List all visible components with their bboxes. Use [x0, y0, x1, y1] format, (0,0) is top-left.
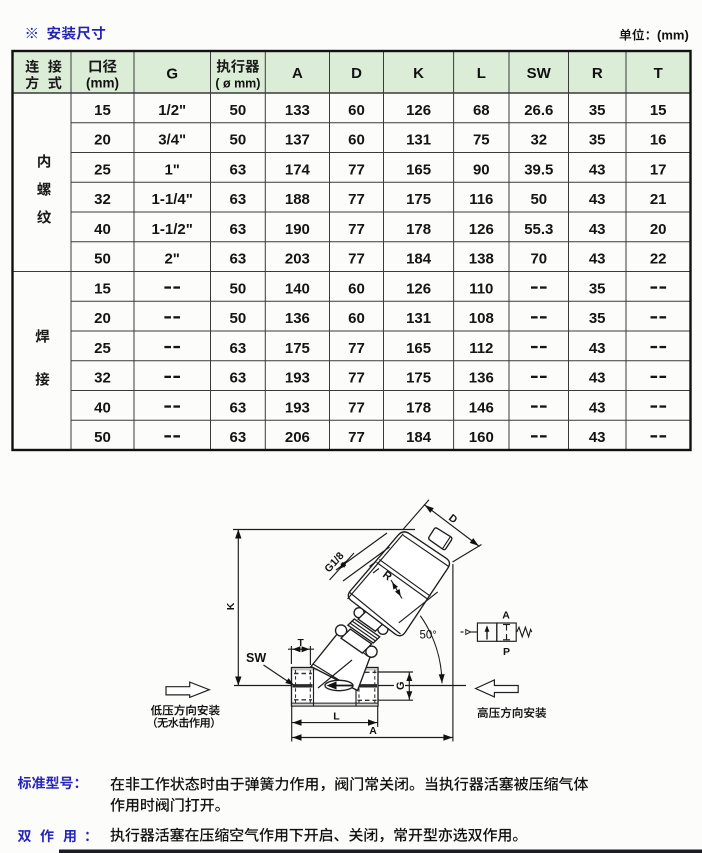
svg-text:126: 126 [469, 221, 494, 238]
svg-text:160: 160 [469, 429, 494, 446]
svg-text:188: 188 [285, 191, 310, 208]
svg-text:(mm): (mm) [86, 76, 119, 91]
svg-text:G: G [166, 66, 178, 83]
svg-text:1/2": 1/2" [158, 102, 186, 119]
svg-text:32: 32 [94, 191, 111, 208]
svg-text:60: 60 [348, 102, 365, 119]
svg-text:( ø mm): ( ø mm) [215, 77, 260, 91]
svg-text:131: 131 [406, 310, 431, 327]
svg-text:43: 43 [589, 221, 606, 238]
svg-text:R: R [592, 65, 603, 82]
svg-text:15: 15 [94, 102, 111, 119]
svg-text:138: 138 [469, 251, 494, 268]
svg-text:D: D [351, 65, 362, 82]
svg-text:3/4": 3/4" [158, 132, 186, 149]
svg-text:L: L [477, 65, 486, 82]
svg-text:50: 50 [94, 429, 111, 446]
svg-text:G1/8: G1/8 [322, 550, 346, 575]
svg-text:126: 126 [406, 102, 431, 119]
svg-text:165: 165 [406, 340, 431, 357]
svg-text:SW: SW [527, 65, 552, 82]
svg-text:165: 165 [406, 161, 431, 178]
svg-text:A: A [292, 65, 303, 82]
svg-text:90: 90 [473, 161, 490, 178]
svg-text:175: 175 [406, 370, 431, 387]
svg-text:193: 193 [285, 370, 310, 387]
svg-text:15: 15 [650, 102, 667, 119]
svg-text:15: 15 [94, 280, 111, 297]
svg-text:63: 63 [230, 429, 247, 446]
svg-text:136: 136 [469, 370, 494, 387]
svg-text:39.5: 39.5 [524, 161, 553, 178]
svg-text:25: 25 [94, 340, 111, 357]
svg-text:50: 50 [230, 102, 247, 119]
svg-text:136: 136 [285, 310, 310, 327]
svg-text:50: 50 [530, 191, 547, 208]
svg-text:20: 20 [650, 221, 667, 238]
svg-text:77: 77 [348, 161, 365, 178]
svg-text:77: 77 [348, 251, 365, 268]
svg-text:G: G [395, 681, 407, 690]
svg-text:50: 50 [230, 310, 247, 327]
svg-text:43: 43 [589, 191, 606, 208]
svg-text:112: 112 [469, 340, 493, 357]
svg-text:2": 2" [164, 251, 179, 268]
svg-text:T: T [654, 65, 663, 82]
svg-text:A: A [369, 725, 377, 737]
svg-text:K: K [225, 602, 237, 610]
svg-text:55.3: 55.3 [524, 221, 553, 238]
svg-text:126: 126 [406, 280, 431, 297]
svg-text:17: 17 [650, 161, 667, 178]
svg-text:43: 43 [589, 370, 606, 387]
svg-text:63: 63 [230, 161, 247, 178]
svg-text:40: 40 [94, 399, 111, 416]
svg-text:77: 77 [348, 429, 365, 446]
svg-text:35: 35 [589, 102, 606, 119]
svg-text:175: 175 [406, 191, 431, 208]
svg-text:190: 190 [285, 221, 310, 238]
svg-text:T: T [298, 638, 304, 649]
svg-text:108: 108 [469, 310, 494, 327]
svg-text:L: L [333, 711, 340, 723]
svg-text:50: 50 [230, 280, 247, 297]
svg-text:43: 43 [589, 161, 606, 178]
svg-text:60: 60 [348, 132, 365, 149]
svg-text:D: D [446, 512, 460, 526]
svg-text:K: K [413, 65, 424, 82]
svg-text:43: 43 [589, 340, 606, 357]
svg-text:A: A [502, 610, 510, 622]
svg-text:40: 40 [94, 221, 111, 238]
svg-text:137: 137 [285, 132, 310, 149]
svg-text:206: 206 [285, 429, 310, 446]
svg-text:1-1/2": 1-1/2" [152, 221, 193, 238]
svg-text:43: 43 [589, 429, 606, 446]
svg-text:63: 63 [230, 399, 247, 416]
svg-text:32: 32 [94, 370, 111, 387]
svg-text:63: 63 [230, 370, 247, 387]
svg-text:P: P [503, 646, 510, 658]
svg-text:32: 32 [530, 132, 547, 149]
svg-text:60: 60 [348, 280, 365, 297]
svg-text:22: 22 [650, 251, 667, 268]
svg-text:68: 68 [473, 102, 490, 119]
svg-text:110: 110 [469, 280, 493, 297]
svg-text:77: 77 [348, 370, 365, 387]
svg-text:1": 1" [164, 161, 179, 178]
svg-text:77: 77 [348, 191, 365, 208]
svg-text:146: 146 [469, 399, 494, 416]
svg-text:16: 16 [650, 132, 667, 149]
svg-text:131: 131 [406, 132, 431, 149]
svg-text:203: 203 [285, 251, 310, 268]
svg-text:43: 43 [589, 399, 606, 416]
svg-text:50°: 50° [420, 630, 437, 642]
svg-text:70: 70 [530, 251, 547, 268]
svg-text:(mm): (mm) [657, 28, 689, 43]
svg-text:50: 50 [230, 132, 247, 149]
svg-text:174: 174 [285, 161, 311, 178]
svg-text:193: 193 [285, 399, 310, 416]
svg-text:184: 184 [406, 429, 432, 446]
svg-text:140: 140 [285, 280, 310, 297]
svg-text:184: 184 [406, 251, 432, 268]
svg-text:63: 63 [230, 340, 247, 357]
svg-text:133: 133 [285, 102, 310, 119]
svg-text:75: 75 [473, 132, 490, 149]
svg-text:SW: SW [246, 651, 266, 665]
svg-text:1-1/4": 1-1/4" [152, 191, 193, 208]
svg-text:178: 178 [406, 399, 431, 416]
svg-text:63: 63 [230, 221, 247, 238]
svg-text:178: 178 [406, 221, 431, 238]
svg-text:50: 50 [94, 251, 111, 268]
svg-text:25: 25 [94, 161, 111, 178]
svg-text:21: 21 [650, 191, 667, 208]
svg-text:77: 77 [348, 340, 365, 357]
svg-text:77: 77 [348, 399, 365, 416]
svg-text:35: 35 [589, 132, 606, 149]
svg-text:20: 20 [94, 132, 111, 149]
svg-text:63: 63 [230, 191, 247, 208]
svg-text:20: 20 [94, 310, 111, 327]
svg-text:35: 35 [589, 310, 606, 327]
svg-text:60: 60 [348, 310, 365, 327]
svg-text:43: 43 [589, 251, 606, 268]
svg-text:77: 77 [348, 221, 365, 238]
svg-text:35: 35 [589, 280, 606, 297]
svg-text:63: 63 [230, 251, 247, 268]
svg-text:175: 175 [285, 340, 310, 357]
svg-text:26.6: 26.6 [524, 102, 553, 119]
svg-text:116: 116 [469, 191, 493, 208]
